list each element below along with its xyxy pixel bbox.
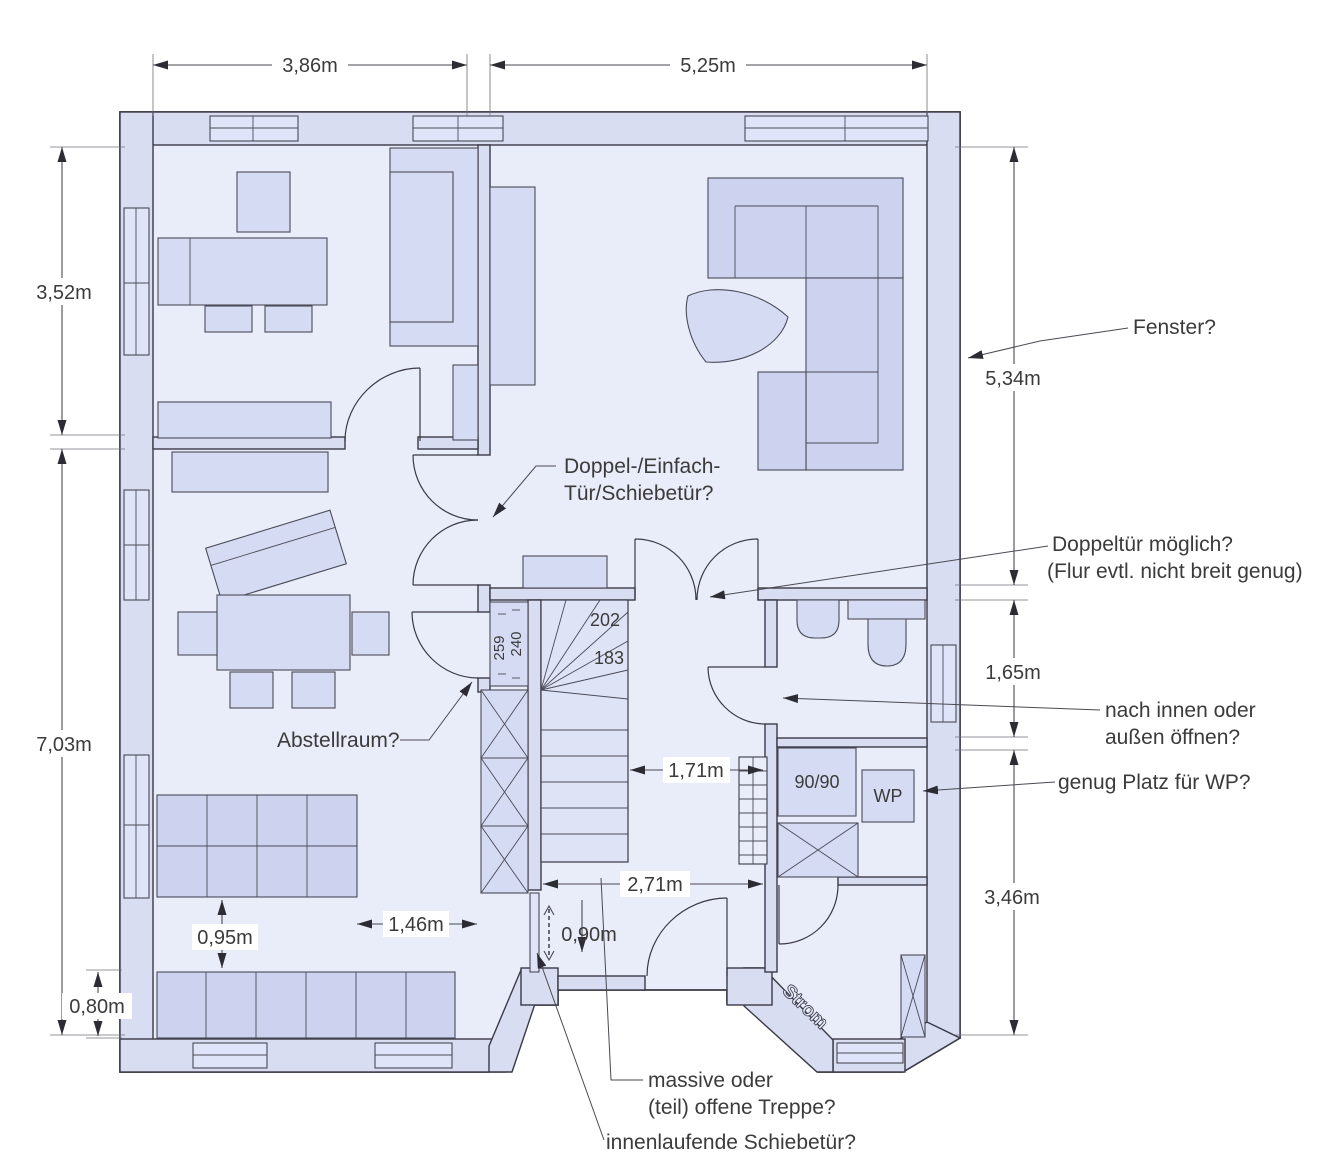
svg-text:2,71m: 2,71m [627,874,683,896]
stair-headroom-lower: 183 [594,648,624,668]
annotation-window: Fenster? [1133,316,1216,339]
closet-dim-b: 259 [491,635,508,660]
office-chair-2 [205,306,252,332]
dim-left-upper: 3,52m [30,147,98,435]
office-sideboard [158,402,331,438]
svg-text:3,52m: 3,52m [36,282,92,304]
hall-wardrobes [481,690,528,893]
window-dining-left [124,490,149,600]
dim-left-lower: 7,03m [30,449,98,1035]
annotation-door-type-1: Doppel-/Einfach- [564,455,720,478]
dim-top-left: 3,86m [153,51,467,78]
svg-text:7,03m: 7,03m [36,734,92,756]
annotation-door-type-2: Tür/Schiebetür? [564,482,713,505]
office-cabinet [453,365,478,440]
annotation-sliding-door: innenlaufende Schiebetür? [606,1131,856,1154]
stair-headroom-upper: 202 [590,610,620,630]
heat-pump-label: WP [874,786,903,806]
dining-chair-left [178,612,217,655]
annotation-stairs-1: massive oder [648,1069,773,1092]
hall-radiator [739,757,767,864]
annotation-door-swing-2: außen öffnen? [1105,726,1240,749]
shower-label: 90/90 [794,772,839,792]
dining-chair-right [352,612,389,655]
svg-text:3,86m: 3,86m [282,55,338,77]
svg-text:0,90m: 0,90m [561,924,617,946]
bath-sink [797,600,839,638]
dim-top-right: 5,25m [490,51,927,78]
svg-text:0,80m: 0,80m [69,996,125,1018]
closet-dim-a: 240 [508,631,525,656]
window-bath-right [931,645,956,722]
svg-text:1,71m: 1,71m [668,760,724,782]
annotation-stairs-2: (teil) offene Treppe? [648,1096,836,1119]
entrance-post-right [727,968,772,1005]
utility-cabinet [901,955,925,1037]
window-bottom-1 [193,1043,267,1068]
window-office-top-1 [210,116,298,141]
kitchen-block [157,795,357,897]
living-shelf [490,187,535,385]
office-chair-3 [265,306,312,332]
dining-chair-b1 [230,672,273,708]
dim-right-middle: 1,65m [979,600,1049,737]
floor-plan-page: 202 183 240 259 [0,0,1320,1167]
bath-toilet [868,619,906,666]
storage-closet: 240 259 [490,602,528,686]
living-sideboard [523,556,607,588]
dining-chair-b2 [292,672,335,708]
dim-right-upper: 5,34m [979,147,1049,585]
entrance-front-wall [558,976,645,990]
office-chair [237,172,290,232]
annotation-storage: Abstellraum? [277,729,400,752]
window-office-left [124,208,149,355]
sliding-door-panel [530,893,539,972]
window-bottom-2 [375,1043,452,1068]
annotation-door-swing-1: nach innen oder [1105,699,1256,722]
dining-sideboard [172,452,328,492]
stair-wall [528,600,541,890]
annotation-heat-pump: genug Platz für WP? [1058,771,1251,794]
svg-text:5,25m: 5,25m [680,55,736,77]
annotation-double-door-2: (Flur evtl. nicht breit genug) [1047,560,1303,583]
svg-text:1,65m: 1,65m [985,662,1041,684]
svg-text:1,46m: 1,46m [388,914,444,936]
dining-table [217,595,350,670]
svg-text:5,34m: 5,34m [985,368,1041,390]
svg-text:3,46m: 3,46m [984,887,1040,909]
window-utility-bottom [837,1043,903,1063]
window-office-top-2 [413,116,503,141]
tech-cabinet [778,823,858,877]
kitchen-counter [157,972,455,1038]
dim-right-lower: 3,46m [978,750,1048,1035]
office-desk [158,238,327,305]
floor-plan-canvas: 202 183 240 259 [0,0,1320,1167]
svg-text:0,95m: 0,95m [197,927,253,949]
window-kitchen-left [124,755,149,898]
window-living-top [745,116,928,141]
annotation-double-door-1: Doppeltür möglich? [1052,533,1233,556]
bath-toilet-shelf [848,600,925,619]
entrance-post-left [521,968,558,1005]
